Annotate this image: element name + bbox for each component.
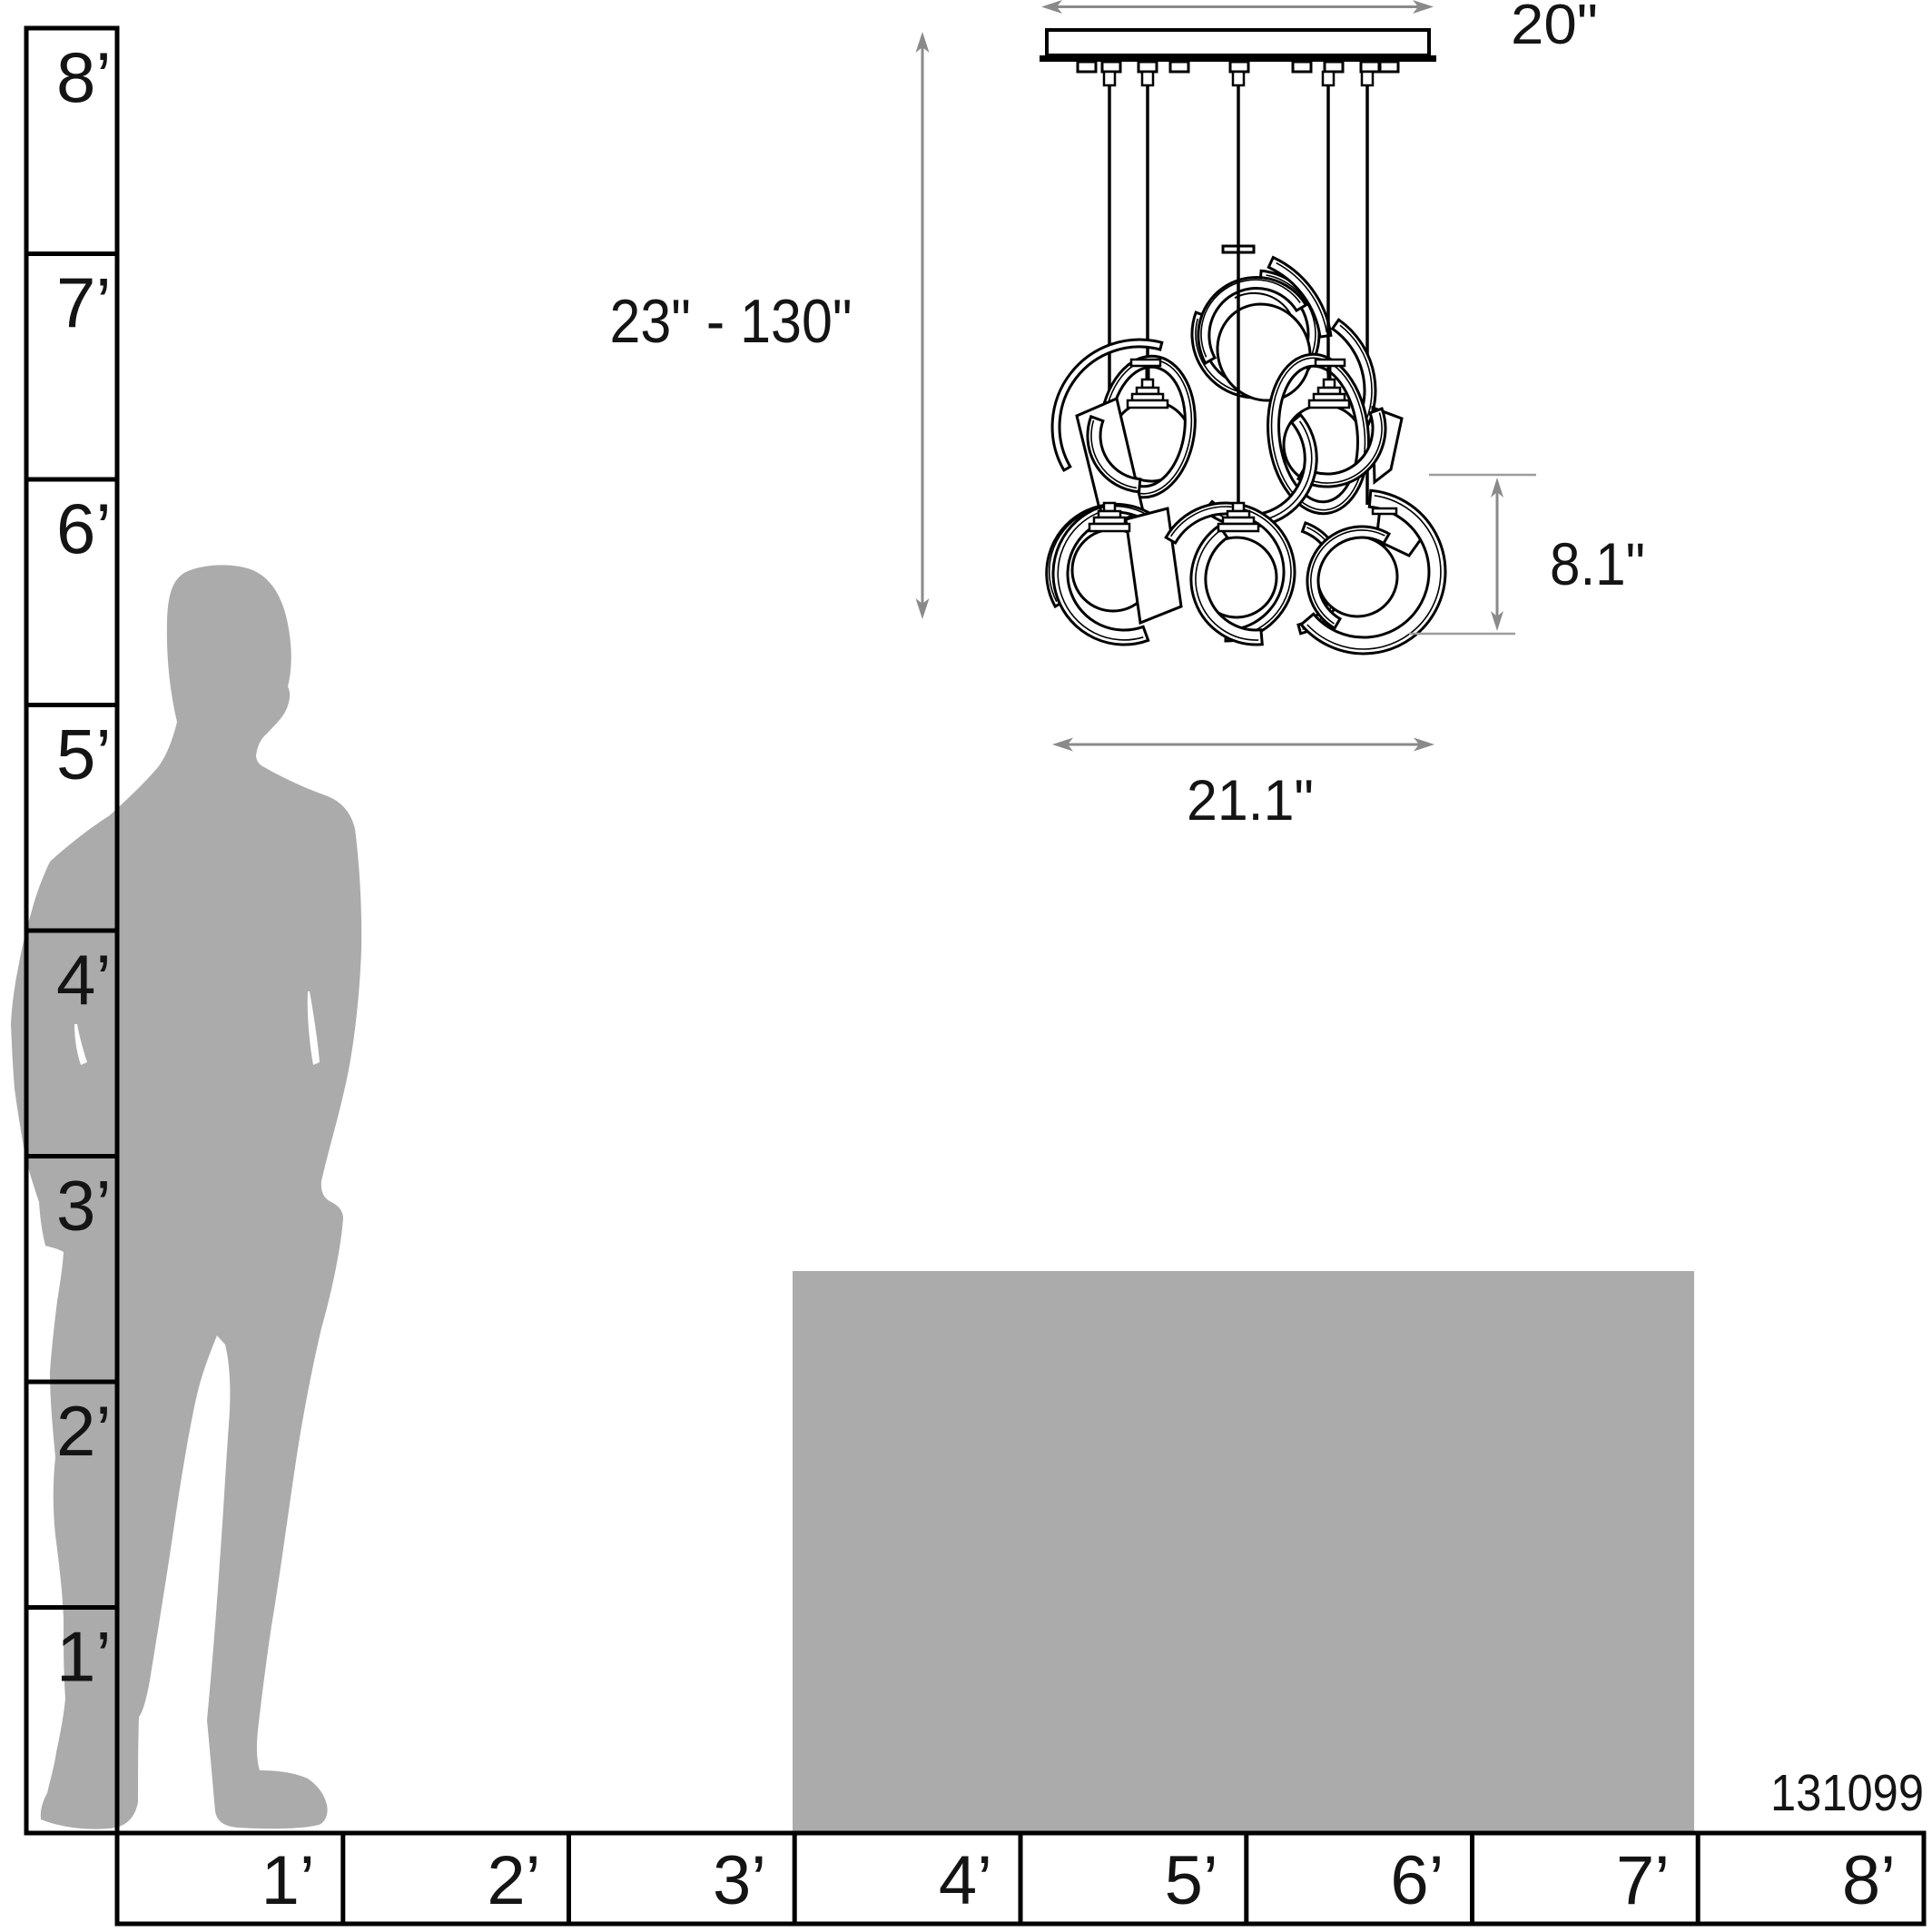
svg-text:6’: 6’	[56, 488, 112, 568]
svg-text:23" - 130": 23" - 130"	[610, 287, 853, 356]
svg-text:8’: 8’	[56, 37, 112, 117]
svg-text:21.1": 21.1"	[1187, 769, 1314, 833]
svg-text:5’: 5’	[56, 715, 112, 794]
svg-text:1’: 1’	[261, 1842, 315, 1919]
svg-text:5’: 5’	[1165, 1842, 1218, 1919]
svg-text:2’: 2’	[56, 1391, 112, 1471]
svg-text:2’: 2’	[487, 1842, 540, 1919]
svg-text:20": 20"	[1511, 0, 1598, 56]
svg-text:4’: 4’	[939, 1842, 992, 1919]
svg-text:8’: 8’	[1842, 1842, 1896, 1919]
svg-text:8.1": 8.1"	[1550, 530, 1645, 597]
svg-text:3’: 3’	[713, 1842, 766, 1919]
svg-text:131099: 131099	[1770, 1764, 1924, 1822]
svg-text:7’: 7’	[1616, 1842, 1670, 1919]
svg-text:1’: 1’	[56, 1617, 112, 1697]
svg-text:7’: 7’	[56, 263, 112, 343]
svg-text:4’: 4’	[56, 940, 112, 1020]
svg-text:6’: 6’	[1390, 1842, 1444, 1919]
svg-text:3’: 3’	[56, 1166, 112, 1246]
